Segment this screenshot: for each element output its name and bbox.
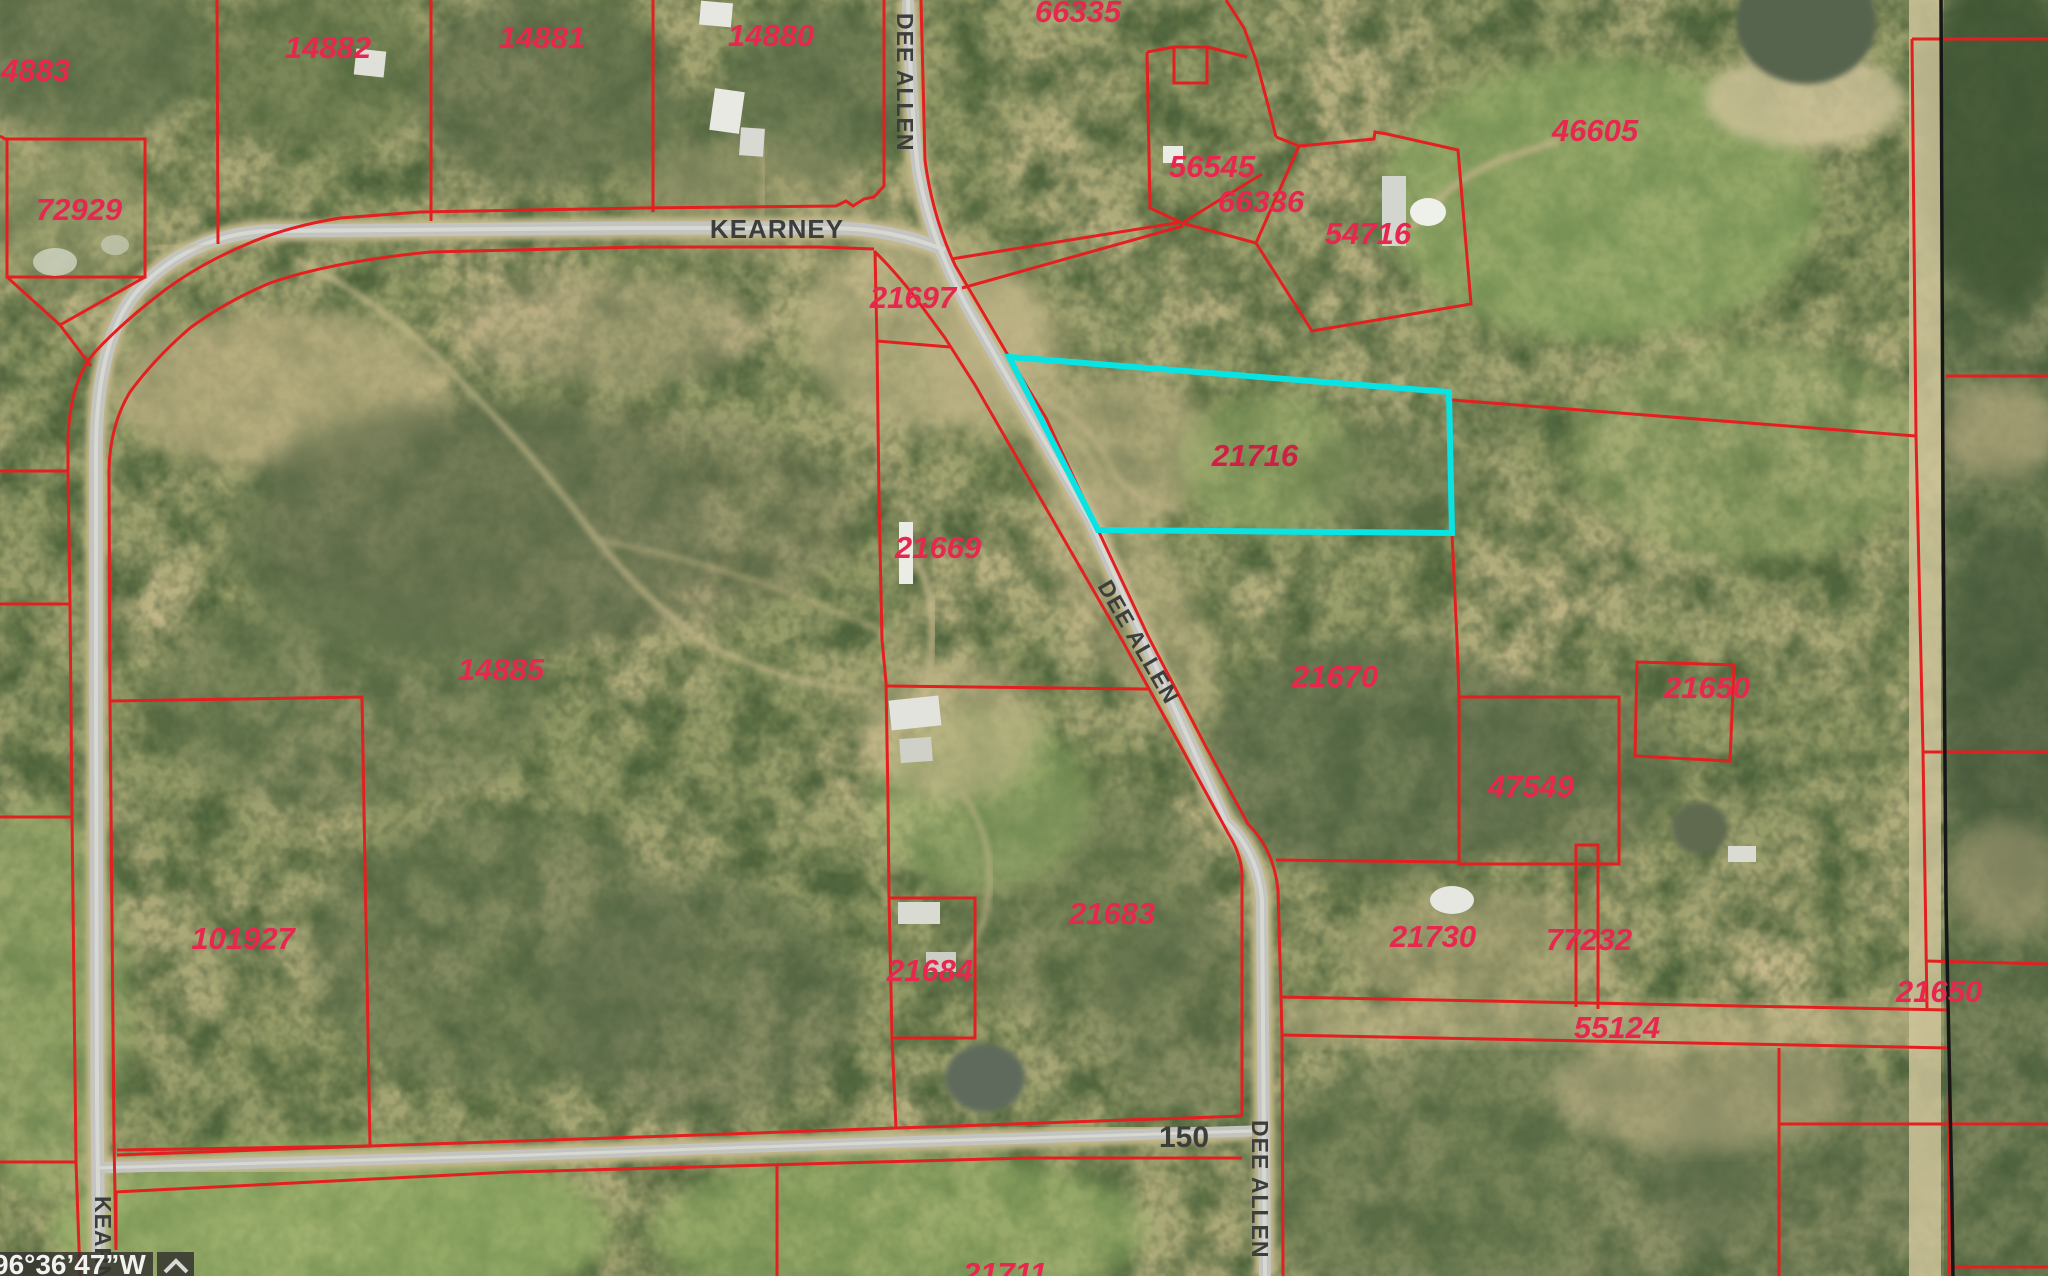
- svg-text:DEE ALLEN: DEE ALLEN: [1247, 1120, 1273, 1259]
- svg-text:21670: 21670: [1291, 659, 1378, 694]
- svg-text:KEARNEY: KEARNEY: [710, 214, 844, 244]
- svg-text:14880: 14880: [728, 18, 814, 53]
- svg-text:55124: 55124: [1574, 1010, 1660, 1045]
- svg-text:96°36’47”W: 96°36’47”W: [0, 1249, 146, 1276]
- svg-text:47549: 47549: [1487, 769, 1575, 804]
- svg-text:72929: 72929: [36, 192, 123, 227]
- svg-text:14885: 14885: [458, 652, 545, 687]
- svg-text:21684: 21684: [886, 953, 973, 988]
- svg-text:21716: 21716: [1211, 438, 1299, 473]
- svg-text:150: 150: [1159, 1121, 1209, 1154]
- svg-text:66336: 66336: [1218, 184, 1305, 219]
- svg-text:21697: 21697: [869, 280, 958, 315]
- svg-text:21711: 21711: [962, 1256, 1047, 1276]
- svg-text:101927: 101927: [191, 921, 296, 956]
- svg-text:56545: 56545: [1169, 149, 1256, 184]
- svg-text:14882: 14882: [285, 30, 371, 65]
- svg-text:21730: 21730: [1389, 919, 1476, 954]
- svg-text:DEE ALLEN: DEE ALLEN: [892, 13, 918, 152]
- svg-text:21683: 21683: [1068, 896, 1155, 931]
- svg-text:21669: 21669: [894, 530, 982, 565]
- svg-text:54716: 54716: [1325, 216, 1412, 251]
- svg-text:66335: 66335: [1035, 0, 1122, 29]
- svg-text:14883: 14883: [0, 53, 70, 88]
- svg-text:14881: 14881: [499, 20, 585, 55]
- svg-text:21650: 21650: [1663, 670, 1750, 705]
- svg-text:21650: 21650: [1895, 974, 1982, 1009]
- svg-text:46605: 46605: [1551, 113, 1639, 148]
- svg-text:77232: 77232: [1546, 922, 1632, 957]
